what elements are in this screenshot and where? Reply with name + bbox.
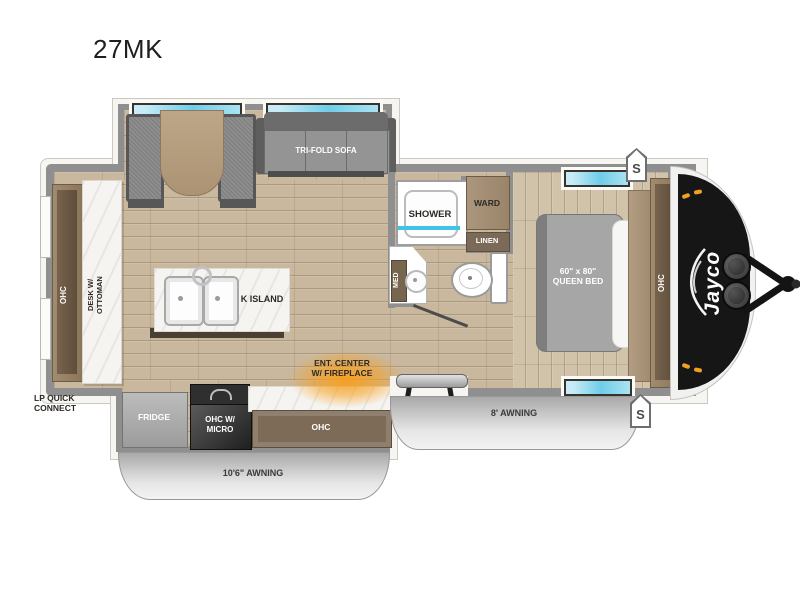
speaker-badge-bottom-letter: S (632, 396, 649, 426)
front-ohc-label: OHC (657, 238, 671, 328)
toilet-flush-dot (468, 276, 472, 280)
linen-label: LINEN (466, 236, 508, 245)
lp-quick-connect-label: LP QUICK CONNECT (34, 393, 114, 413)
sofa-backrest (264, 112, 388, 132)
wardrobe-label: WARD (466, 198, 508, 208)
dinette-seat-right-base (220, 200, 256, 208)
vanity-sink (405, 270, 428, 293)
fridge-label: FRIDGE (122, 412, 186, 422)
entry-step-1 (396, 374, 468, 388)
vanity-sink-drain (413, 278, 417, 282)
awning-10ft6-label: 10'6" AWNING (118, 468, 388, 479)
dinette-seat-left-base (128, 200, 164, 208)
rear-window-bottom (40, 298, 51, 360)
sink-drain-right (215, 296, 220, 301)
bedroom-window-bottom (564, 379, 632, 396)
awning-8ft-label: 8' AWNING (390, 408, 638, 419)
dinette-table (160, 110, 224, 196)
jayco-logo: Jayco (701, 223, 727, 343)
floorplan-canvas: 27MK TRI-FOLD SOFA OHC DESK W/ OTTOMAN L… (0, 0, 800, 600)
bedroom-window-top (564, 170, 630, 187)
sofa-base (268, 171, 384, 177)
shower-water-line (398, 226, 460, 230)
cooktop-burner-icon (210, 389, 232, 400)
speaker-badge-top: S (626, 148, 647, 182)
med-label: MED (393, 263, 403, 297)
ohc-micro-label: OHC W/ MICRO (190, 415, 250, 434)
dinette-seat-left (126, 114, 164, 202)
sink-drain-left (178, 296, 183, 301)
faucet-icon (192, 266, 212, 286)
propane-tank-1 (722, 252, 751, 281)
desk-label: DESK W/ OTTOMAN (86, 230, 116, 360)
hitch-frame (742, 242, 800, 328)
rear-ohc-label: OHC (59, 240, 75, 350)
sofa-label: TRI-FOLD SOFA (266, 146, 386, 156)
shower-label: SHOWER (398, 209, 462, 220)
island-label: K ISLAND (238, 294, 286, 305)
page-title: 27MK (93, 34, 163, 65)
queen-bed-label: 60" x 80" QUEEN BED (540, 266, 616, 286)
awning-8ft (390, 396, 640, 450)
rear-window-top (40, 196, 51, 258)
speaker-badge-top-letter: S (628, 150, 645, 180)
propane-tank-2 (722, 281, 751, 310)
ent-center-label: ENT. CENTER W/ FIREPLACE (292, 358, 392, 378)
kitchen-ohc-label: OHC (252, 422, 390, 432)
